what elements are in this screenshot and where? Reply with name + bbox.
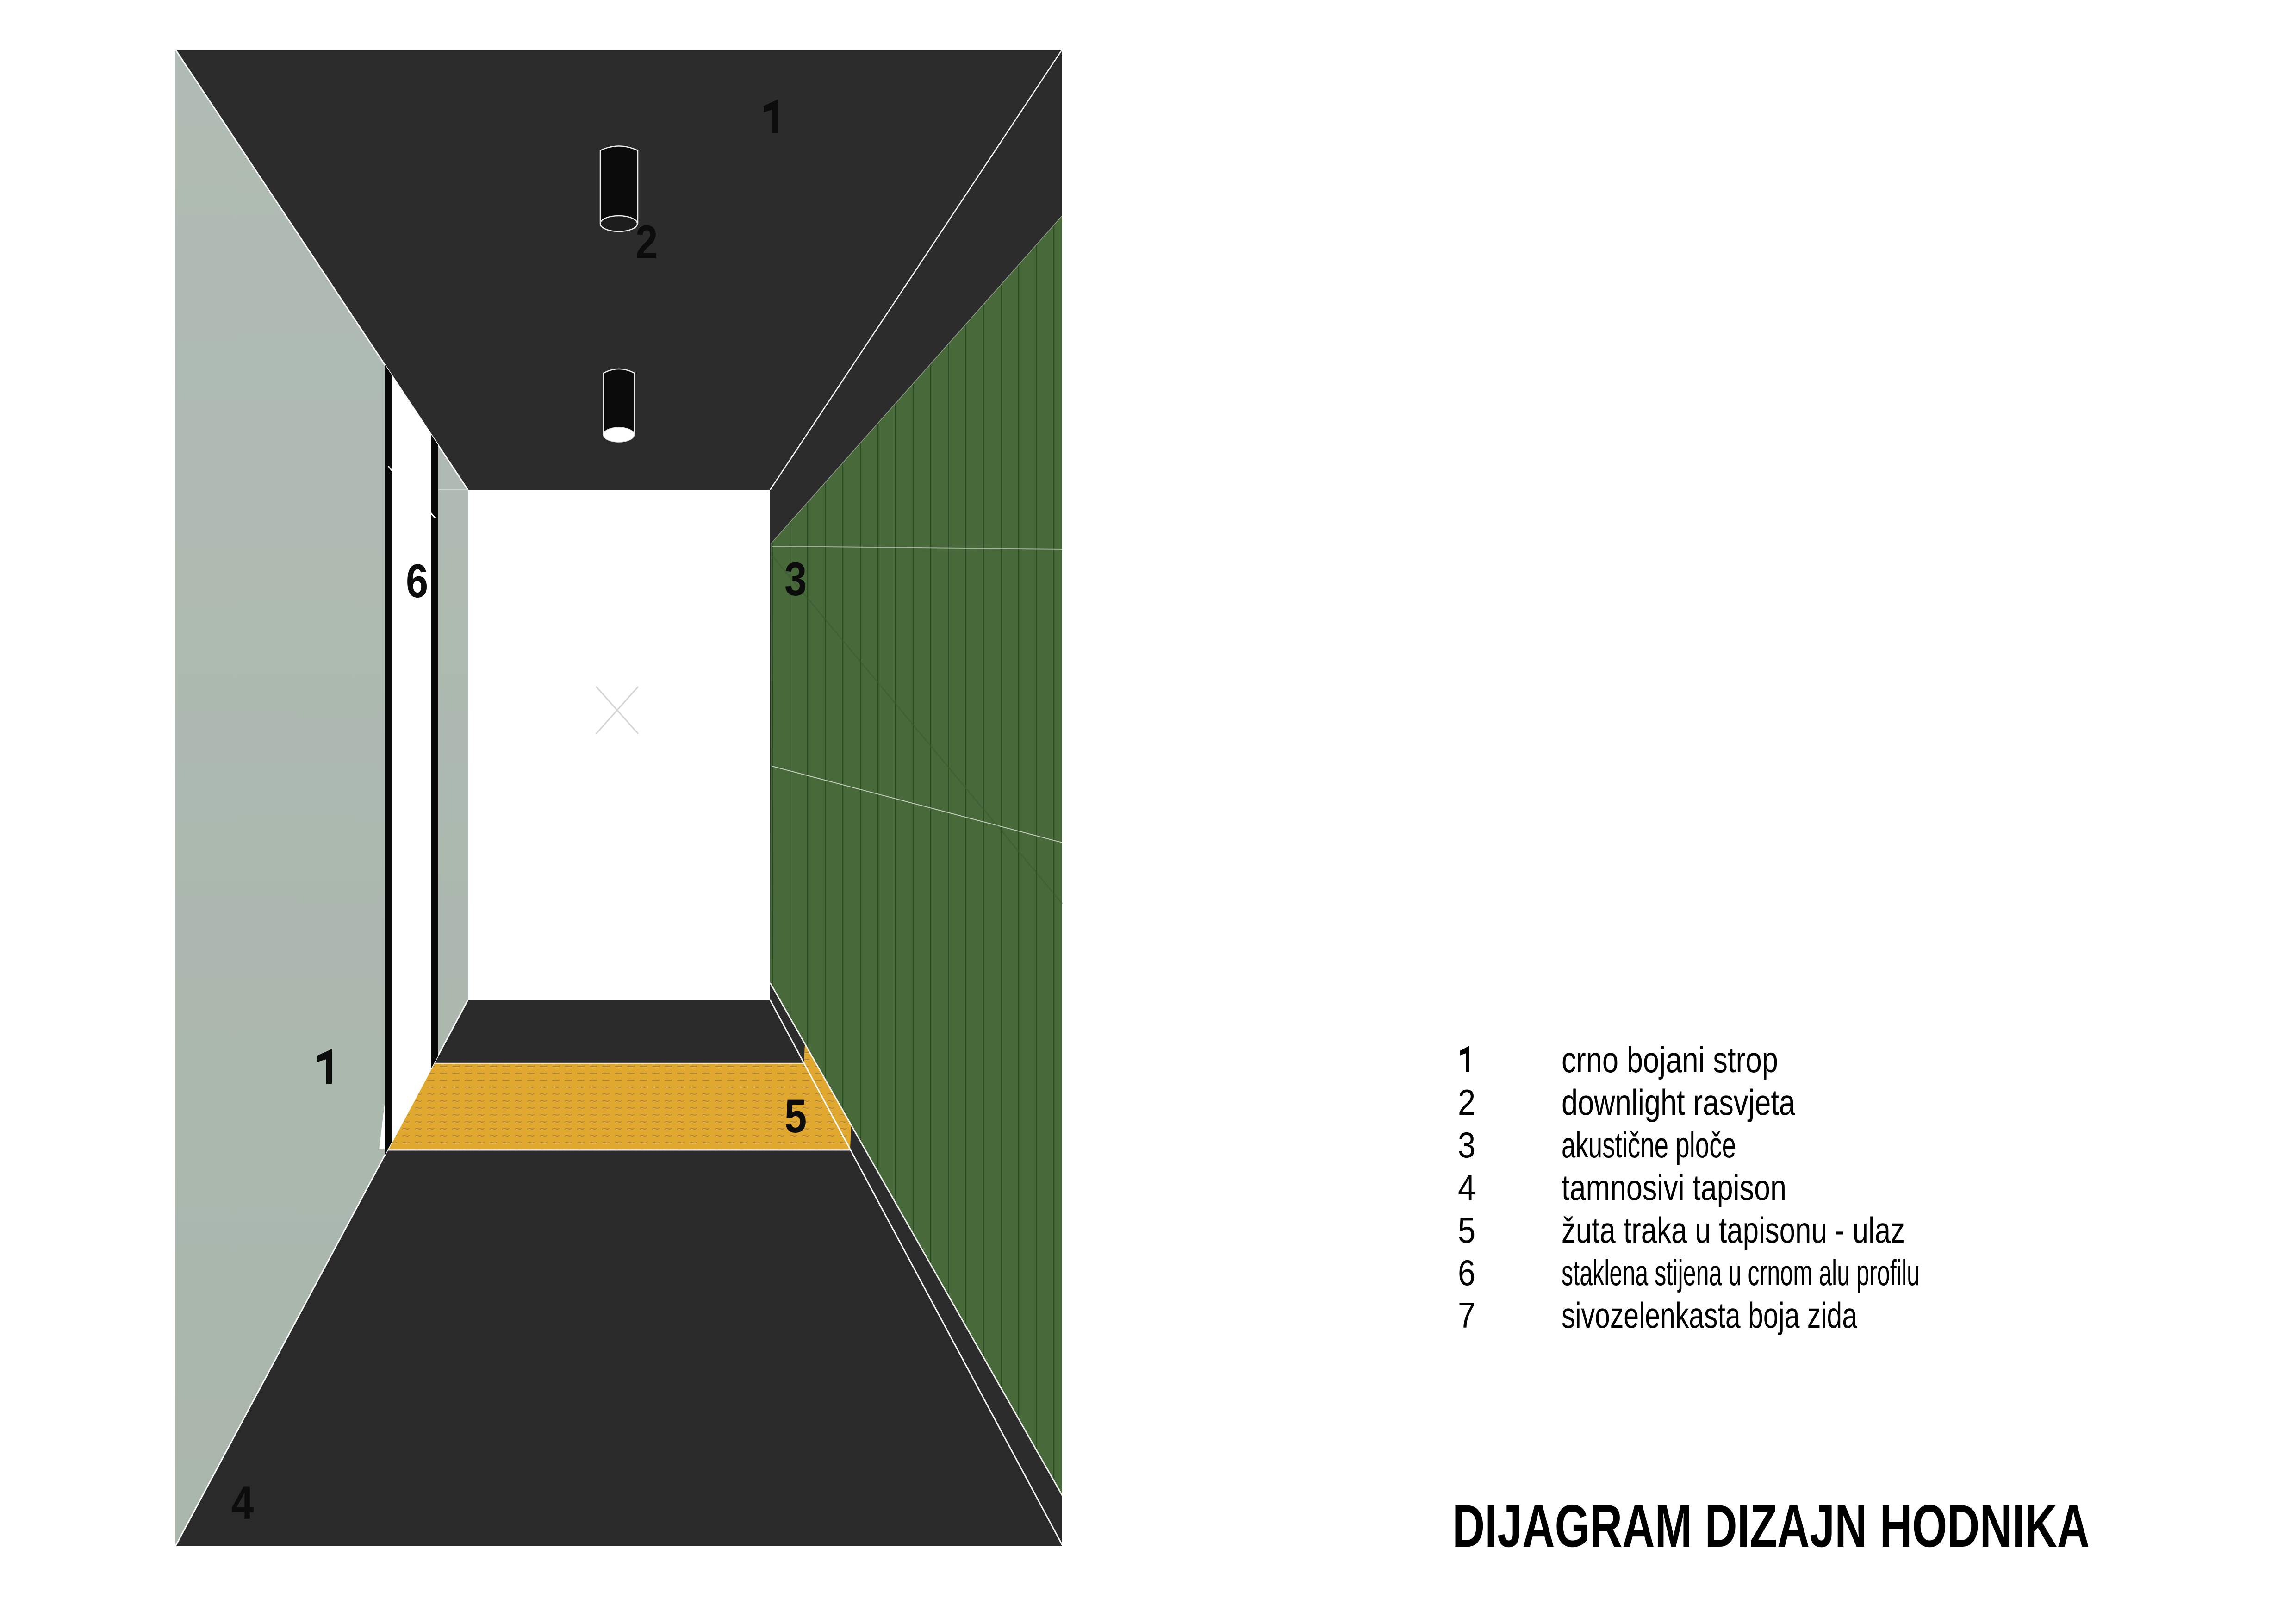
svg-text:5: 5 bbox=[1458, 1210, 1475, 1250]
svg-text:sivozelenkasta boja zida: sivozelenkasta boja zida bbox=[1562, 1295, 1857, 1336]
svg-text:staklena stijena u crnom alu p: staklena stijena u crnom alu profilu bbox=[1562, 1252, 1920, 1293]
svg-text:2: 2 bbox=[635, 216, 658, 269]
svg-text:6: 6 bbox=[1458, 1252, 1475, 1293]
svg-text:6: 6 bbox=[406, 555, 428, 607]
svg-text:2: 2 bbox=[1458, 1082, 1475, 1123]
svg-text:downlight rasvjeta: downlight rasvjeta bbox=[1562, 1082, 1796, 1123]
svg-text:crno bojani strop: crno bojani strop bbox=[1562, 1039, 1778, 1080]
svg-text:5: 5 bbox=[784, 1090, 807, 1143]
svg-text:3: 3 bbox=[784, 553, 807, 606]
svg-text:žuta traka u tapisonu - ulaz: žuta traka u tapisonu - ulaz bbox=[1562, 1210, 1905, 1250]
svg-text:7: 7 bbox=[1458, 1295, 1475, 1336]
svg-text:DIJAGRAM DIZAJN HODNIKA: DIJAGRAM DIZAJN HODNIKA bbox=[1452, 1492, 2090, 1560]
svg-text:4: 4 bbox=[1458, 1167, 1475, 1208]
svg-text:tamnosivi tapison: tamnosivi tapison bbox=[1562, 1167, 1786, 1208]
svg-text:3: 3 bbox=[1458, 1124, 1475, 1165]
svg-text:akustične ploče: akustične ploče bbox=[1562, 1124, 1736, 1165]
svg-text:4: 4 bbox=[231, 1476, 254, 1529]
